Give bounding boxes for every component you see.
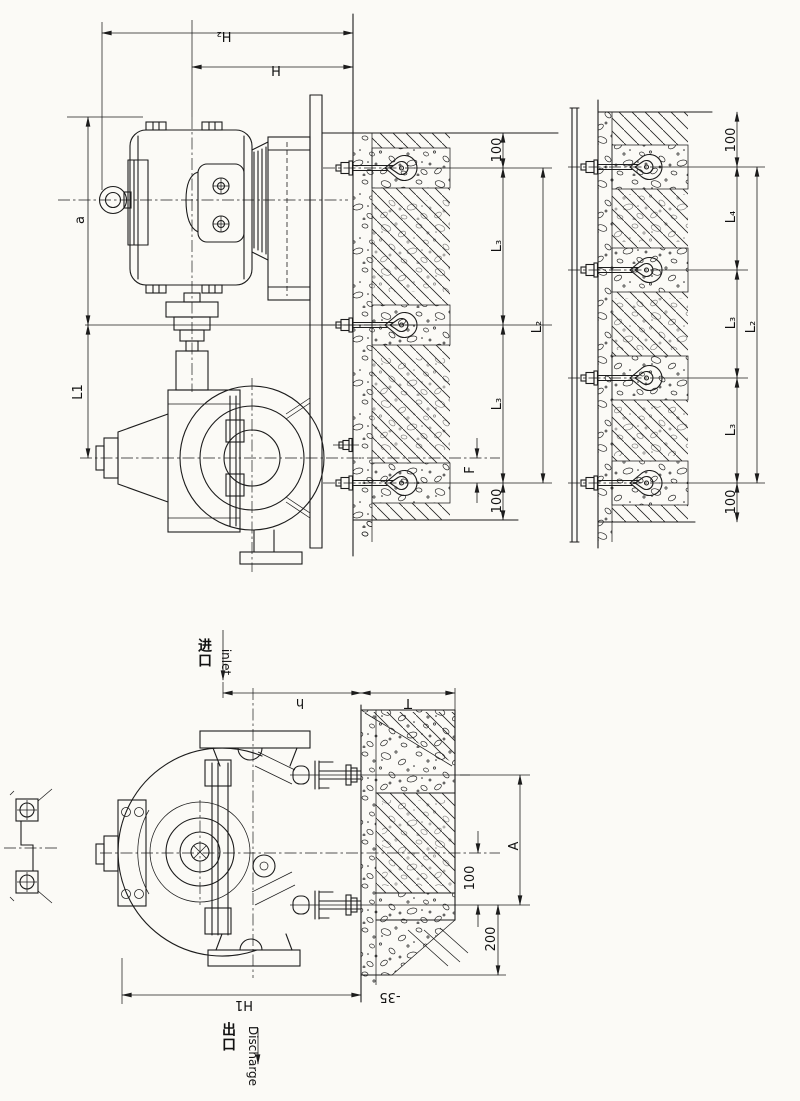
dim-L1: L1	[71, 325, 88, 458]
dim-label-h1: H1	[235, 997, 253, 1012]
wall-plan	[361, 705, 468, 1002]
dim-label-a2: A	[507, 841, 522, 850]
dim-100-plan: 100	[463, 831, 478, 927]
dim-H2: H₂	[102, 22, 353, 190]
terminal-box	[186, 164, 244, 242]
dim-label-a: a	[73, 216, 88, 224]
inlet-label-cn: 进口	[196, 638, 212, 668]
dim-label-100: 100	[490, 138, 505, 163]
dim-label-f: F	[463, 466, 478, 473]
wall-section-a	[322, 14, 558, 556]
dim-label-100: 100	[490, 489, 505, 514]
dim-label-t: T	[404, 695, 413, 710]
dim-label-l3: L₃	[490, 240, 505, 252]
inlet-label-en: inlet	[219, 649, 233, 676]
dim-a: a	[67, 117, 143, 325]
bolt-detail-view	[4, 789, 58, 903]
drawing-sheet: H₂ H a L1 100 L₃ L₃ 100 L₂ F	[0, 0, 800, 1101]
dim-h: h	[223, 682, 361, 710]
dim-label-100: 100	[724, 128, 739, 153]
pump-plan	[96, 731, 310, 966]
dim-label-l1: L1	[71, 384, 86, 400]
pump-side	[96, 386, 324, 564]
inlet-annotation: 进口 inlet	[196, 630, 233, 680]
discharge-annotation: 出口 Discharge	[220, 1021, 260, 1086]
dim-label-100: 100	[724, 490, 739, 515]
dim-label-l3: L₃	[724, 317, 739, 329]
dim-label-100: 100	[463, 866, 478, 891]
discharge-label-cn: 出口	[220, 1021, 236, 1052]
dim-label-l2: L₂	[744, 321, 759, 333]
dim-label-l2: L₂	[530, 321, 545, 333]
pump-installation-drawing: H₂ H a L1 100 L₃ L₃ 100 L₂ F	[0, 0, 800, 1101]
side-view: H₂ H a L1 100 L₃ L₃ 100 L₂ F	[58, 14, 558, 572]
electric-motor	[100, 122, 253, 293]
dim-label-l3: L₃	[490, 398, 505, 410]
dim-label-hh: h	[296, 695, 304, 710]
dim-label-neg35: -35	[379, 989, 400, 1004]
dim-label-200: 200	[484, 927, 499, 952]
dim-T: T	[361, 688, 455, 712]
wall-section-b: 100 L₄ L₃ L₃ 100 L₂	[568, 100, 765, 548]
dim-label-h2: H₂	[217, 28, 232, 43]
dim-label-h: H	[271, 62, 281, 77]
dim-label-l4: L₄	[724, 211, 739, 223]
motor-adapter	[252, 137, 310, 300]
dim-H: H	[192, 62, 353, 77]
plan-view: 进口 inlet 出口 Discharge h T A 100 200 H1	[96, 630, 530, 1086]
dim-label-l3: L₃	[724, 424, 739, 436]
